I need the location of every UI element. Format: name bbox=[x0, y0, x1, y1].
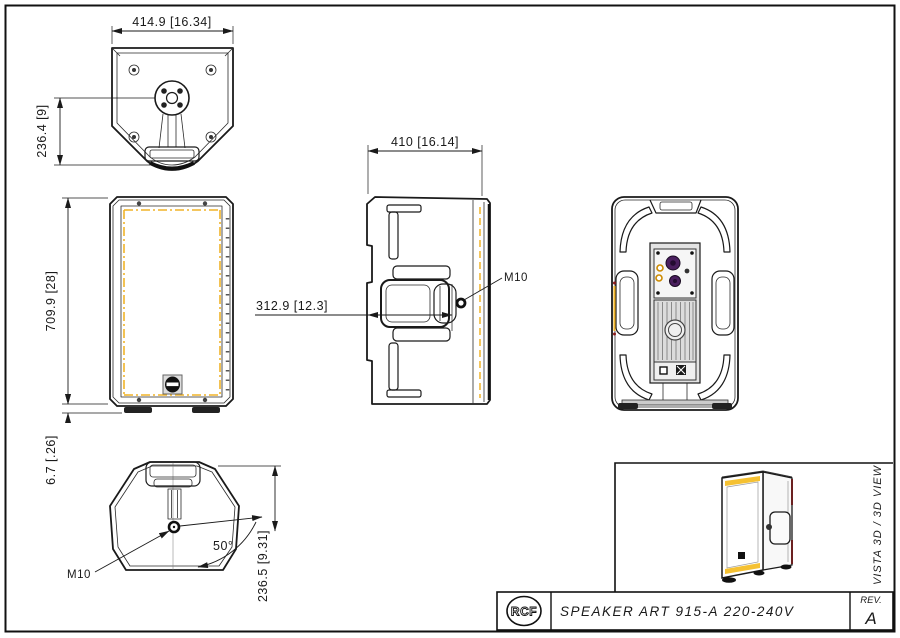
dim-bottom-depth-label: 236.5 [9.31] bbox=[256, 530, 270, 602]
bottom-view: M10 50° 236.5 [9.31] bbox=[67, 462, 281, 602]
front-view: 709.9 [28] 6.7 [.26] bbox=[44, 197, 233, 485]
angle-label: 50° bbox=[213, 539, 233, 553]
drawing-sheet: 414.9 [16.34] 236.4 [9] 709.9 [28] bbox=[0, 0, 900, 638]
front-foot-left bbox=[124, 407, 152, 413]
dim-top-width-label: 414.9 [16.34] bbox=[132, 15, 211, 29]
dim-side-depth-label: 410 [16.14] bbox=[391, 135, 459, 149]
front-foot-right bbox=[192, 407, 220, 413]
m10-insert-side bbox=[457, 299, 465, 307]
m10-label-bottom: M10 bbox=[67, 569, 91, 581]
rcf-logo-text: RCF bbox=[511, 605, 537, 619]
amp-module bbox=[650, 243, 700, 383]
drawing-title: SPEAKER ART 915-A 220-240V bbox=[560, 604, 795, 619]
side-view: M10 410 [16.14] 312.9 [12.3] bbox=[255, 135, 528, 404]
dim-front-height-label: 709.9 [28] bbox=[44, 271, 58, 332]
dim-m10-offset-label: 312.9 [12.3] bbox=[256, 299, 328, 313]
rev-label: REV. bbox=[860, 595, 881, 606]
pole-mount bbox=[155, 81, 189, 115]
rear-view bbox=[612, 197, 738, 410]
dim-feet-height-label: 6.7 [.26] bbox=[44, 435, 58, 485]
side-handle bbox=[381, 266, 456, 341]
front-logo-badge bbox=[163, 375, 182, 394]
rev-value: A bbox=[864, 609, 876, 628]
speaker-3d bbox=[722, 471, 792, 583]
view3d-box: VISTA 3D / 3D VIEW bbox=[615, 463, 893, 592]
technical-drawing-page: 414.9 [16.34] 236.4 [9] 709.9 [28] bbox=[0, 0, 900, 638]
power-inlet bbox=[660, 367, 667, 374]
view3d-label: VISTA 3D / 3D VIEW bbox=[872, 464, 884, 585]
grille-accent-lines bbox=[124, 210, 220, 395]
dim-top-depth-label: 236.4 [9] bbox=[35, 104, 49, 157]
speaker-3d-handle bbox=[770, 512, 790, 544]
top-view: 414.9 [16.34] 236.4 [9] bbox=[35, 15, 233, 170]
m10-label-side: M10 bbox=[504, 272, 528, 284]
title-block: RCF SPEAKER ART 915-A 220-240V REV. A bbox=[497, 592, 893, 630]
